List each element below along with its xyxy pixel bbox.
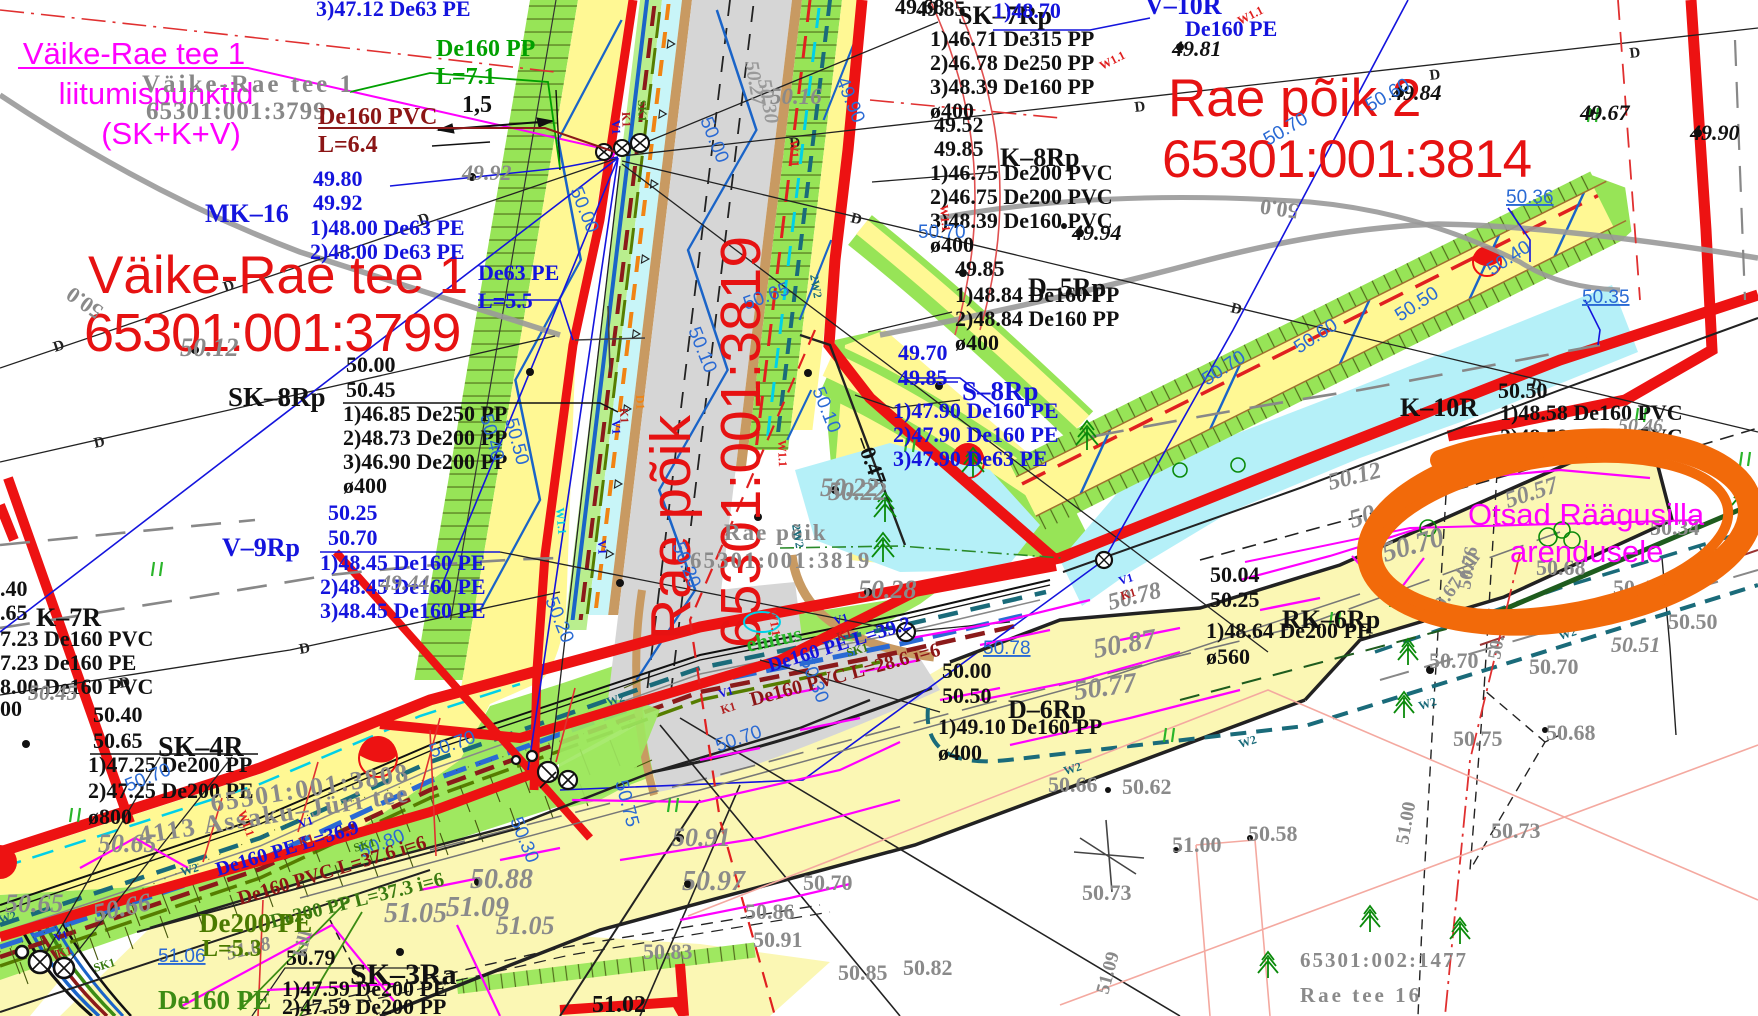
svg-text:.65: .65 xyxy=(0,600,28,625)
svg-text:50.22: 50.22 xyxy=(828,477,887,506)
svg-text:49.92: 49.92 xyxy=(313,190,363,215)
svg-text:W1.1: W1.1 xyxy=(937,204,953,232)
svg-text:49.85: 49.85 xyxy=(955,256,1005,281)
svg-text:1)49.10 De160 PP: 1)49.10 De160 PP xyxy=(938,714,1102,739)
svg-text:50.04: 50.04 xyxy=(1210,562,1260,587)
svg-text:00: 00 xyxy=(0,696,22,721)
svg-text:K1: K1 xyxy=(617,408,632,424)
svg-text:D1: D1 xyxy=(633,395,648,410)
svg-text:65301:002:1477: 65301:002:1477 xyxy=(1300,948,1468,972)
svg-text:3)46.90 De200 PP: 3)46.90 De200 PP xyxy=(343,449,507,474)
svg-text:De160 PE: De160 PE xyxy=(158,985,271,1015)
svg-text:ø400: ø400 xyxy=(955,330,999,355)
svg-text:.40: .40 xyxy=(0,576,28,601)
svg-text:2)48.84 De160 PP: 2)48.84 De160 PP xyxy=(955,306,1119,331)
svg-text:De160 PP: De160 PP xyxy=(436,36,535,62)
svg-text:D: D xyxy=(1629,45,1642,62)
svg-text:49.92: 49.92 xyxy=(461,160,512,185)
svg-text:1)48.64 De200 PE: 1)48.64 De200 PE xyxy=(1206,618,1372,643)
svg-text:50.70: 50.70 xyxy=(1429,648,1479,673)
svg-text:Rae põik: Rae põik xyxy=(724,520,828,545)
svg-text:49.67: 49.67 xyxy=(1579,100,1631,125)
svg-text:49.81: 49.81 xyxy=(1171,36,1222,61)
svg-text:50.25: 50.25 xyxy=(1210,587,1260,612)
svg-text:1,5: 1,5 xyxy=(462,92,492,118)
svg-text:49.70: 49.70 xyxy=(898,340,948,365)
svg-text:50.50: 50.50 xyxy=(942,683,992,708)
svg-text:49.90: 49.90 xyxy=(1689,120,1740,145)
svg-text:ø400: ø400 xyxy=(343,473,387,498)
svg-text:50.62: 50.62 xyxy=(1122,774,1172,799)
svg-text:50.00: 50.00 xyxy=(942,658,992,683)
svg-text:50.82: 50.82 xyxy=(903,955,953,980)
svg-text:50.28: 50.28 xyxy=(858,575,917,604)
svg-text:De63 PE: De63 PE xyxy=(478,260,559,285)
svg-text:51.00: 51.00 xyxy=(1172,832,1222,857)
svg-text:2)47.90 De160 PE: 2)47.90 De160 PE xyxy=(893,422,1059,447)
svg-text:Väike-Rae tee 1: Väike-Rae tee 1 xyxy=(23,36,245,71)
svg-text:ø560: ø560 xyxy=(1206,644,1250,669)
svg-text:50.45: 50.45 xyxy=(28,680,78,705)
svg-text:50.91: 50.91 xyxy=(672,823,731,852)
svg-text:1)48.00 De63 PE: 1)48.00 De63 PE xyxy=(310,215,465,240)
svg-text:SK–8Rp: SK–8Rp xyxy=(228,382,326,412)
svg-text:3)47.12 De63 PE: 3)47.12 De63 PE xyxy=(316,0,471,21)
svg-text:50.40: 50.40 xyxy=(93,702,143,727)
svg-text:Rae põik: Rae põik xyxy=(639,415,703,640)
svg-text:3)48.39 De160 PP: 3)48.39 De160 PP xyxy=(930,74,1094,99)
svg-text:50.70: 50.70 xyxy=(803,870,853,895)
svg-text:49.94: 49.94 xyxy=(1071,220,1122,245)
svg-text:50.51: 50.51 xyxy=(1611,632,1661,657)
svg-text:K–10R: K–10R xyxy=(1400,393,1478,422)
svg-text:L=5.5: L=5.5 xyxy=(478,288,533,313)
svg-text:1)46.75 De200 PVC: 1)46.75 De200 PVC xyxy=(930,160,1113,185)
svg-text:50.88: 50.88 xyxy=(470,864,533,895)
svg-text:V–9Rp: V–9Rp xyxy=(222,533,300,562)
svg-text:50.75: 50.75 xyxy=(1453,726,1503,751)
svg-text:49.85: 49.85 xyxy=(934,136,984,161)
svg-text:L=7.1: L=7.1 xyxy=(436,64,496,90)
svg-text:51.02: 51.02 xyxy=(592,992,646,1016)
svg-text:50.65: 50.65 xyxy=(93,728,143,753)
svg-text:50.65: 50.65 xyxy=(98,829,157,858)
svg-text:2)47.59 De200 PP: 2)47.59 De200 PP xyxy=(282,994,446,1016)
svg-text:50.58: 50.58 xyxy=(1248,821,1298,846)
svg-text:49.85: 49.85 xyxy=(898,365,948,390)
svg-text:7.23 De160 PVC: 7.23 De160 PVC xyxy=(0,626,153,651)
svg-text:L=6.4: L=6.4 xyxy=(318,132,378,158)
svg-text:arendusele: arendusele xyxy=(1510,534,1663,569)
svg-text:50.45: 50.45 xyxy=(346,377,396,402)
svg-text:50.73: 50.73 xyxy=(1491,818,1541,843)
svg-text:49.52: 49.52 xyxy=(934,112,984,137)
svg-text:50.83: 50.83 xyxy=(643,939,693,964)
svg-text:51.05: 51.05 xyxy=(496,911,555,940)
svg-text:De160 PVC: De160 PVC xyxy=(318,104,437,130)
svg-text:50.73: 50.73 xyxy=(1082,880,1132,905)
svg-text:1)47.90 De160 PE: 1)47.90 De160 PE xyxy=(893,398,1059,423)
svg-text:Väike-Rae tee 1: Väike-Rae tee 1 xyxy=(142,71,355,98)
svg-text:65301:001:3819: 65301:001:3819 xyxy=(690,548,871,573)
svg-text:De200 PE: De200 PE xyxy=(199,908,312,938)
svg-text:49.44: 49.44 xyxy=(379,570,430,595)
svg-text:51.06: 51.06 xyxy=(158,946,206,967)
svg-text:50.36: 50.36 xyxy=(1506,187,1554,208)
svg-text:W1.1: W1.1 xyxy=(553,507,569,535)
svg-text:V1: V1 xyxy=(595,540,610,555)
svg-text:W1.1: W1.1 xyxy=(787,140,802,167)
svg-text:65301:001:3799: 65301:001:3799 xyxy=(84,303,460,363)
svg-text:Rae tee 16: Rae tee 16 xyxy=(1300,983,1422,1007)
svg-text:50.86: 50.86 xyxy=(745,899,795,924)
svg-text:7.23 De160 PE: 7.23 De160 PE xyxy=(0,650,136,675)
svg-text:50.97: 50.97 xyxy=(682,866,746,897)
svg-text:W1.1: W1.1 xyxy=(775,440,790,467)
svg-text:ø800: ø800 xyxy=(88,804,132,829)
svg-text:50.00: 50.00 xyxy=(346,352,396,377)
svg-text:D: D xyxy=(1134,99,1147,116)
svg-text:50.78: 50.78 xyxy=(983,638,1031,659)
svg-text:2)48.00 De63 PE: 2)48.00 De63 PE xyxy=(310,239,465,264)
svg-text:65301:001:3799: 65301:001:3799 xyxy=(146,98,327,125)
svg-text:3)47.90 De63 PE: 3)47.90 De63 PE xyxy=(893,446,1048,471)
svg-text:50.50: 50.50 xyxy=(1668,609,1718,634)
svg-text:L=5.3: L=5.3 xyxy=(202,936,262,962)
svg-text:50.91: 50.91 xyxy=(753,927,803,952)
svg-text:50.68: 50.68 xyxy=(1546,720,1596,745)
svg-text:2)46.78 De250 PP: 2)46.78 De250 PP xyxy=(930,50,1094,75)
svg-text:50.70: 50.70 xyxy=(328,525,378,550)
svg-text:50.12: 50.12 xyxy=(180,333,239,362)
svg-text:50.0: 50.0 xyxy=(1258,194,1300,224)
svg-text:ø400: ø400 xyxy=(938,740,982,765)
svg-text:Otsad Räägusilla: Otsad Räägusilla xyxy=(1468,497,1705,532)
svg-text:1)48.84 De160 PP: 1)48.84 De160 PP xyxy=(955,282,1119,307)
svg-text:50.85: 50.85 xyxy=(838,960,888,985)
svg-text:50.35: 50.35 xyxy=(1582,287,1630,308)
svg-text:K1: K1 xyxy=(619,112,634,128)
svg-text:50.25: 50.25 xyxy=(328,500,378,525)
svg-text:50.70: 50.70 xyxy=(1529,654,1579,679)
svg-text:65301:001:3814: 65301:001:3814 xyxy=(1162,130,1531,189)
svg-text:49.80: 49.80 xyxy=(313,166,363,191)
svg-text:3)48.45 De160 PE: 3)48.45 De160 PE xyxy=(320,598,486,623)
svg-text:2)46.75 De200 PVC: 2)46.75 De200 PVC xyxy=(930,184,1113,209)
svg-text:1)48.70: 1)48.70 xyxy=(993,0,1061,23)
svg-text:MK–16: MK–16 xyxy=(205,199,289,228)
svg-text:1)46.71 De315 PP: 1)46.71 De315 PP xyxy=(930,26,1094,51)
svg-text:SK1: SK1 xyxy=(635,100,650,122)
